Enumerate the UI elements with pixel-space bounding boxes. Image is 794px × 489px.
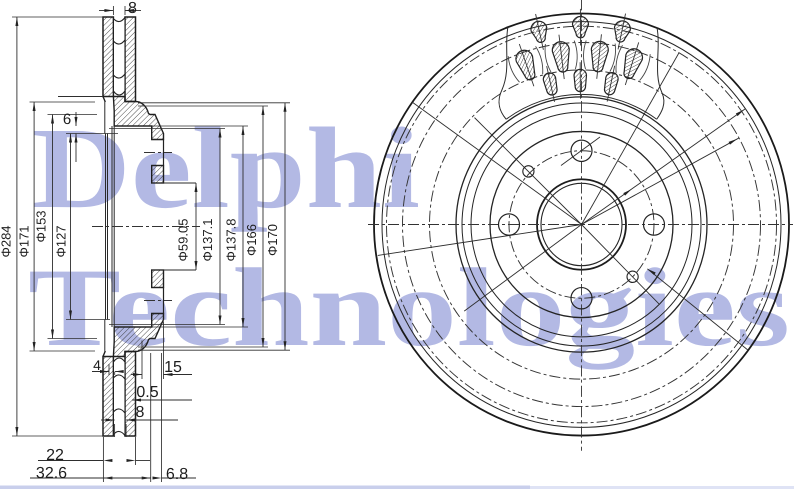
svg-text:Φ137.1: Φ137.1 xyxy=(200,219,215,262)
svg-text:22: 22 xyxy=(46,447,64,464)
svg-text:0.5: 0.5 xyxy=(136,384,158,401)
svg-text:6: 6 xyxy=(63,111,71,128)
svg-text:Φ284: Φ284 xyxy=(0,225,14,257)
svg-text:4: 4 xyxy=(93,357,101,373)
svg-text:Φ166: Φ166 xyxy=(244,224,259,256)
svg-text:6.8: 6.8 xyxy=(166,466,188,483)
svg-text:8: 8 xyxy=(128,0,137,17)
svg-text:Φ137.8: Φ137.8 xyxy=(223,219,238,262)
svg-text:32.6: 32.6 xyxy=(36,465,67,482)
svg-text:Φ171: Φ171 xyxy=(16,225,31,257)
svg-text:15: 15 xyxy=(164,359,182,376)
svg-text:Delphi: Delphi xyxy=(32,105,420,233)
svg-text:Φ170: Φ170 xyxy=(265,224,280,256)
svg-text:Φ127: Φ127 xyxy=(54,225,69,257)
svg-text:8: 8 xyxy=(136,404,145,421)
svg-text:Φ153: Φ153 xyxy=(34,210,49,242)
svg-text:Φ59.05: Φ59.05 xyxy=(176,219,191,262)
